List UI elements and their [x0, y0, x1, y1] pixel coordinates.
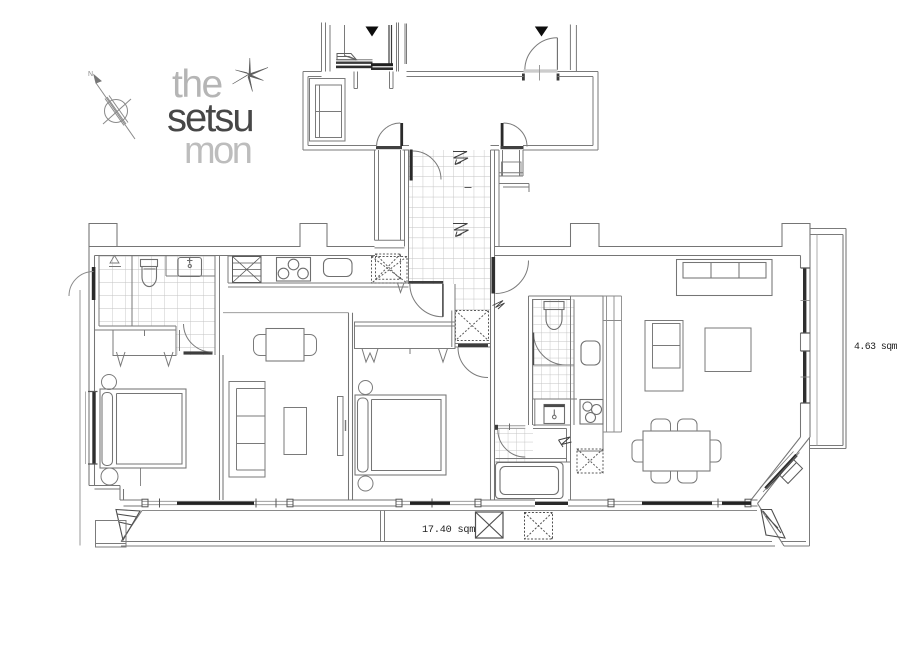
- svg-text:mon: mon: [184, 130, 251, 172]
- svg-text:17.40 sqm: 17.40 sqm: [422, 525, 475, 536]
- svg-text:4.63 sqm: 4.63 sqm: [854, 341, 898, 352]
- svg-text:N: N: [88, 71, 93, 78]
